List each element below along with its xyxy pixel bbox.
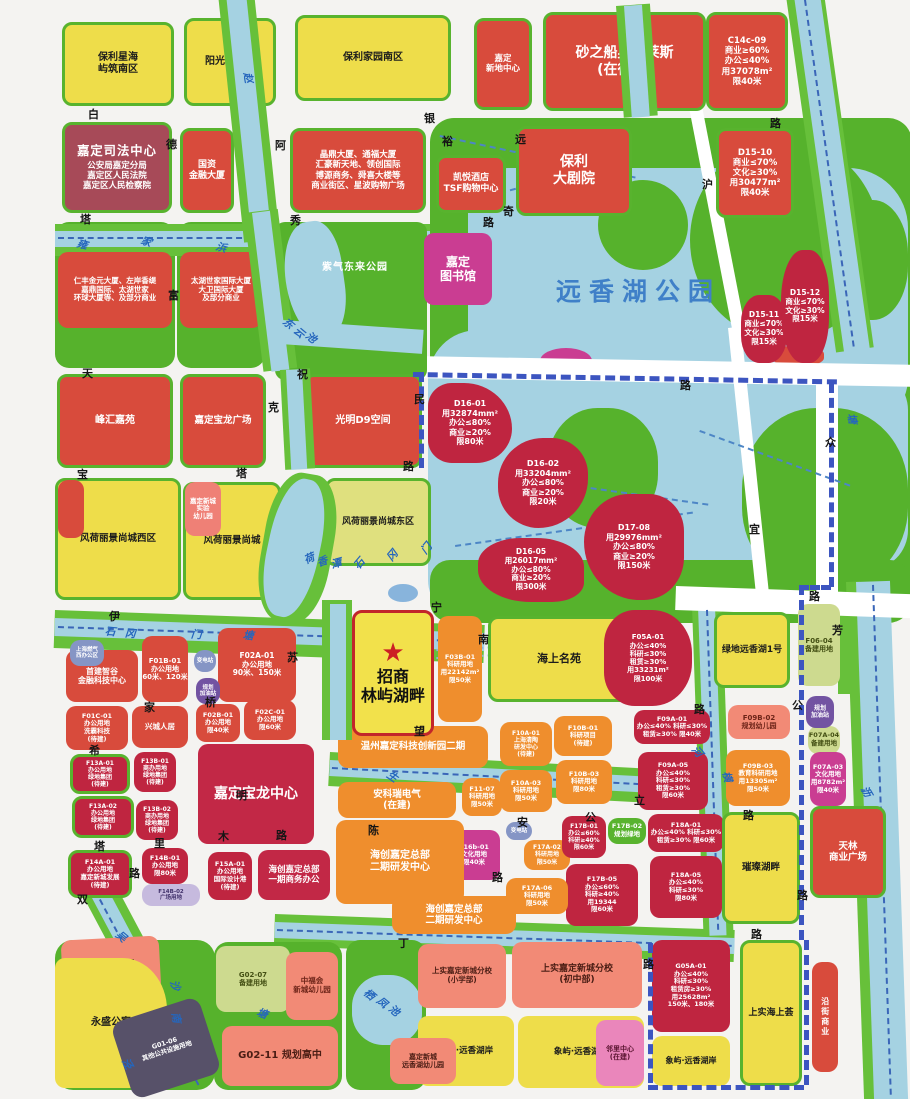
map-parcel: F02C-01办公用地限60米 bbox=[244, 700, 296, 740]
parcel-label: 限50米 bbox=[515, 795, 537, 803]
road-name-label: 众 bbox=[825, 434, 836, 450]
road bbox=[816, 372, 838, 617]
parcel-label: 二期研发中心 bbox=[370, 862, 430, 874]
map-parcel: 上实嘉定新城分校(小学部) bbox=[418, 944, 506, 1008]
map-parcel: F18A-01办公≤40% 科研≤30%租赁≥30% 限60米 bbox=[648, 814, 724, 852]
map-parcel: F01B-01办公用地60米、120米 bbox=[142, 636, 188, 702]
parcel-label: (待建) bbox=[91, 781, 109, 788]
parcel-label: 幼儿园 bbox=[193, 513, 213, 521]
parcel-label: 保利家园南区 bbox=[343, 52, 403, 64]
parcel-label: (小学部) bbox=[447, 976, 476, 985]
map-parcel: F17B-01办公≤60%科研≥40%限60米 bbox=[562, 816, 606, 858]
parcel-label: 环球大厦等、及部分商业 bbox=[74, 294, 157, 303]
parcel-label: D15-10 bbox=[738, 148, 772, 158]
river-name-label: 塘 bbox=[242, 628, 254, 644]
map-parcel: G05A-01办公≤40%科研≤30%租赁房≥30%用25628m²150米、1… bbox=[652, 940, 730, 1032]
road-name-label: 白 bbox=[88, 106, 99, 122]
planning-boundary-dashed-line bbox=[419, 372, 424, 468]
parcel-label: 嘉定宝龙中心 bbox=[214, 786, 298, 803]
parcel-label: 保利 bbox=[560, 154, 588, 171]
parcel-label: 商业≥60% bbox=[725, 46, 769, 56]
parcel-label: 商办用地 bbox=[145, 813, 169, 820]
map-parcel: F11-07科研用地限50米 bbox=[462, 778, 502, 816]
parcel-label: 汇豪新天地、领创国际 bbox=[315, 160, 400, 170]
parcel-label: 办公≤40% bbox=[630, 642, 667, 650]
parcel-label: 限50米 bbox=[526, 900, 548, 908]
map-parcel: D15-12商业≤70%文化≥30%限15米 bbox=[781, 250, 829, 363]
map-parcel: 嘉定宝龙广场 bbox=[180, 374, 266, 468]
map-parcel: F02A-01办公用地90米、150米 bbox=[218, 628, 296, 702]
map-parcel: 凯悦酒店TSF购物中心 bbox=[436, 155, 506, 213]
road-name-label: 路 bbox=[643, 956, 654, 972]
parcel-label: 图书馆 bbox=[440, 269, 476, 283]
map-parcel: 国资金融大厦 bbox=[180, 128, 234, 213]
planning-boundary-dashed-line bbox=[804, 940, 809, 1085]
parcel-label: 新地中心 bbox=[486, 64, 520, 74]
road-name-label: 路 bbox=[276, 827, 287, 843]
road-name-label: 南 bbox=[478, 631, 489, 647]
parcel-label: 备建用地 bbox=[811, 740, 837, 748]
parcel-label: 限50米 bbox=[537, 859, 557, 866]
map-parcel: 保利大剧院 bbox=[516, 126, 632, 216]
road-name-label: 天 bbox=[82, 365, 93, 381]
parcel-label: 限60米 bbox=[591, 906, 613, 914]
map-parcel: F14B-02广场用地 bbox=[142, 884, 200, 906]
zoning-map: 保利星海屿筑南区阳光城新界保利家园南区嘉定新地中心砂之船奥特莱斯(在待建)C14… bbox=[0, 0, 910, 1099]
road-name-label: 塔 bbox=[94, 838, 105, 854]
parcel-label: 90米、150米 bbox=[233, 669, 282, 678]
map-parcel: 仁丰金元大厦、左岸香缇嘉鼎国际、太湖世家环球大厦等、及部分商业 bbox=[58, 252, 172, 328]
road-name-label: 家 bbox=[144, 699, 155, 715]
parcel-label: 60米、120米 bbox=[142, 673, 187, 681]
map-parcel: 光明D9空间 bbox=[304, 374, 422, 468]
map-parcel: F13B-02商办用地绿地集团(待建) bbox=[136, 800, 178, 840]
map-parcel: F07A-03文化用地用8782m²限40米 bbox=[810, 752, 846, 806]
parcel-label: (在建) bbox=[610, 1053, 630, 1061]
map-parcel: C14c-09商业≥60%办公≤40%用37078m²限40米 bbox=[706, 12, 788, 111]
parcel-label: 限50米 bbox=[449, 677, 471, 685]
parcel-label: 风荷丽景尚城西区 bbox=[80, 533, 156, 544]
map-parcel: F14B-01办公用地限80米 bbox=[142, 848, 188, 884]
parcel-label: 规划 bbox=[814, 705, 826, 712]
parcel-label: 新城幼儿园 bbox=[293, 986, 331, 995]
parcel-label: 办公≤40% bbox=[725, 56, 769, 66]
parcel-label: F06-04 bbox=[805, 637, 832, 645]
river-name-label: 门 bbox=[190, 627, 202, 643]
parcel-label: 限50米 bbox=[747, 786, 769, 794]
road-name-label: 裕 bbox=[442, 133, 453, 149]
parcel-label: (待建) bbox=[148, 827, 166, 834]
road-name-label: 德 bbox=[166, 136, 177, 152]
map-parcel: 天林商业广场 bbox=[810, 806, 886, 898]
map-parcel: 上海燃气西办公区 bbox=[70, 640, 104, 666]
road-name-label: 丁 bbox=[398, 935, 409, 951]
map-parcel: 海创嘉定总部二期研发中心 bbox=[392, 896, 516, 934]
parcel-label: 广场用地 bbox=[160, 895, 182, 901]
map-parcel: 安科瑞电气(在建) bbox=[338, 782, 456, 818]
road-name-label: 秀 bbox=[290, 212, 301, 228]
road-name-label: 银 bbox=[424, 110, 435, 126]
parcel-label: 大剧院 bbox=[553, 171, 595, 188]
map-parcel: 上实嘉定新城分校(初中部) bbox=[512, 942, 642, 1008]
parcel-label: 租赁≥30% 限60米 bbox=[657, 837, 715, 845]
parcel-label: 用33204mm² bbox=[515, 469, 571, 478]
parcel-label: 林屿湖畔 bbox=[361, 687, 425, 706]
parcel-label: 限15米 bbox=[792, 315, 817, 324]
parcel-label: 温州嘉定科技创新园二期 bbox=[361, 741, 466, 752]
map-parcel: 海创嘉定总部一期商务办公 bbox=[258, 850, 330, 900]
parcel-label: (待建) bbox=[91, 882, 110, 890]
map-parcel: F10A-03科研用地限50米 bbox=[500, 770, 552, 812]
map-parcel: F13A-02办公用地绿地集团(待建) bbox=[72, 796, 134, 838]
parcel-label: 嘉定区人民法院 bbox=[87, 171, 147, 181]
map-parcel: 绿地远香湖1号 bbox=[714, 612, 790, 688]
map-parcel: 保利家园南区 bbox=[295, 15, 451, 101]
road-name-label: 塔 bbox=[236, 465, 247, 481]
road-name-label: 民 bbox=[414, 391, 425, 407]
road-name-label: 伊 bbox=[109, 608, 120, 624]
star-icon: ★ bbox=[381, 640, 404, 666]
parcel-label: 金融大厦 bbox=[189, 171, 225, 182]
parcel-label: 公安局嘉定分局 bbox=[87, 161, 147, 171]
parcel-label: 限100米 bbox=[634, 675, 663, 683]
parcel-label: G02-07 bbox=[239, 971, 267, 979]
parcel-label: 邻里中心 bbox=[606, 1045, 634, 1053]
parcel-label: 用30477m² bbox=[730, 178, 781, 188]
parcel-label: 商办用地 bbox=[143, 765, 167, 772]
map-parcel: D16-05用26017mm²办公≤80%商业≥20%限300米 bbox=[478, 538, 584, 602]
map-parcel: 沿街商业 bbox=[812, 962, 838, 1072]
parcel-label: F05A-01 bbox=[632, 633, 665, 641]
parcel-label: 限40米 bbox=[733, 77, 762, 87]
parcel-label: 象屿·远香湖岸 bbox=[665, 1056, 716, 1065]
map-parcel: 中福会新城幼儿园 bbox=[286, 952, 338, 1020]
map-parcel: G02-11 规划高中 bbox=[222, 1026, 338, 1086]
map-parcel: 规划加油站 bbox=[806, 696, 834, 728]
parcel-label: 变电站 bbox=[197, 658, 214, 664]
parcel-label: 商业街区、星波购物广场 bbox=[311, 181, 405, 191]
road-name-label: 苏 bbox=[287, 649, 298, 665]
parcel-label: 风荷丽景尚城 bbox=[203, 535, 260, 546]
parcel-label: 商业≥20% bbox=[449, 428, 491, 437]
parcel-label: 凯悦酒店 bbox=[453, 173, 489, 184]
road-name-label: 阿 bbox=[275, 137, 286, 153]
road-name-label: 路 bbox=[129, 865, 140, 881]
parcel-label: F09B-02 bbox=[743, 714, 776, 722]
parcel-label: C14c-09 bbox=[728, 36, 766, 46]
parcel-label: 限60米 bbox=[259, 724, 281, 732]
parcel-label: D17-08 bbox=[618, 523, 650, 532]
parcel-label: (待建) bbox=[221, 884, 240, 892]
road-name-label: 富 bbox=[168, 287, 179, 303]
parcel-label: D16-01 bbox=[454, 399, 486, 408]
map-parcel: F07A-04备建用地 bbox=[808, 726, 840, 754]
parcel-label: 上实海上荟 bbox=[748, 1008, 793, 1019]
map-parcel: 嘉定图书馆 bbox=[424, 233, 492, 305]
planning-boundary-dashed-line bbox=[829, 383, 834, 587]
parcel-label: 用33231m² bbox=[627, 666, 669, 674]
parcel-label: F13B-02 bbox=[143, 806, 171, 813]
parcel-label: 璀璨湖畔 bbox=[742, 862, 780, 873]
parcel-label: (待建) bbox=[146, 779, 164, 786]
parcel-label: 嘉定 bbox=[494, 54, 511, 64]
map-parcel bbox=[58, 480, 84, 538]
parcel-label: 商业≥20% bbox=[522, 488, 564, 497]
road-name-label: 宜 bbox=[749, 521, 760, 537]
road-name-label: 路 bbox=[751, 926, 762, 942]
parcel-label: F01B-01 bbox=[149, 657, 182, 665]
parcel-label: 办公≤80% bbox=[449, 418, 491, 427]
parcel-label: 兴城人居 bbox=[145, 723, 175, 732]
parcel-label: 限80米 bbox=[573, 786, 595, 794]
parcel-label: 限150米 bbox=[618, 561, 651, 570]
map-parcel: F10A-01上海清陶研发中心(待建) bbox=[500, 722, 552, 766]
map-parcel: 象屿·远香湖岸 bbox=[652, 1036, 730, 1086]
map-parcel: 璀璨湖畔 bbox=[722, 812, 800, 924]
map-parcel: F18A-05办公≤40%科研≤30%限80米 bbox=[650, 856, 722, 918]
area-title: 远香湖公园 bbox=[556, 272, 721, 308]
road-name-label: 克 bbox=[268, 399, 279, 415]
parcel-label: 光明D9空间 bbox=[335, 415, 390, 427]
road-name-label: 祝 bbox=[297, 366, 308, 382]
road-name-label: 路 bbox=[797, 887, 808, 903]
map-parcel: 嘉定新城实验幼儿园 bbox=[185, 482, 221, 536]
parcel-label: 办公≤80% bbox=[522, 478, 564, 487]
area-title: 紫气东来公园 bbox=[322, 258, 388, 273]
parcel-label: 晶鼎大厦、通福大厦 bbox=[320, 150, 397, 160]
river-name-label: 南 bbox=[168, 1011, 185, 1024]
road-name-label: 公 bbox=[585, 809, 596, 825]
parcel-label: 办公用地 bbox=[88, 767, 112, 774]
parcel-label: (待建) bbox=[94, 824, 112, 831]
parcel-label: 办公用地 bbox=[151, 665, 179, 673]
parcel-label: 办公用地 bbox=[91, 810, 115, 817]
road-name-label: 桥 bbox=[205, 694, 216, 710]
parcel-label: 限40米 bbox=[463, 859, 485, 867]
parcel-label: (待建) bbox=[574, 740, 593, 748]
road-name-label: 希 bbox=[89, 742, 100, 758]
parcel-label: F10A-01 bbox=[512, 730, 540, 737]
parcel-label: 风荷丽景尚城东区 bbox=[342, 517, 414, 528]
parcel-label: (在建) bbox=[383, 800, 411, 811]
parcel-label: 限40米 bbox=[741, 188, 770, 198]
map-parcel: 嘉定新地中心 bbox=[474, 18, 532, 110]
parcel-label: 用29976mm² bbox=[606, 533, 662, 542]
road-name-label: 安 bbox=[517, 814, 528, 830]
map-parcel: F02B-01办公用地限40米 bbox=[196, 704, 240, 742]
map-parcel: 兴城人居 bbox=[132, 706, 188, 748]
parcel-label: 国资 bbox=[198, 160, 216, 171]
parcel-label: 嘉定区人民检察院 bbox=[83, 181, 151, 191]
parcel-label: 博源商务、舜喜大楼等 bbox=[315, 171, 400, 181]
parcel-label: 商业≥20% bbox=[613, 552, 655, 561]
map-parcel: F09A-05办公≤40%科研≤30%租赁≥30%限60米 bbox=[638, 752, 708, 810]
road-name-label: 路 bbox=[770, 115, 781, 131]
parcel-label: 租赁≥30% bbox=[630, 658, 667, 666]
parcel-label: 用32874mm² bbox=[442, 409, 498, 418]
map-parcel: F17B-05办公≤60%科研≥40%用19344限60米 bbox=[566, 864, 638, 926]
planning-boundary-dashed-line bbox=[648, 1085, 804, 1090]
parcel-label: 限80米 bbox=[675, 895, 697, 903]
map-parcel: F09B-02规划幼儿园 bbox=[728, 705, 790, 739]
parcel-label: TSF购物中心 bbox=[444, 184, 499, 195]
road-name-label: 公 bbox=[792, 697, 803, 713]
river-name-label: 冈 bbox=[124, 626, 136, 642]
parcel-label: 规划幼儿园 bbox=[742, 722, 777, 730]
parcel-label: 一期商务办公 bbox=[268, 875, 319, 885]
parcel-label: 规划绿地 bbox=[614, 831, 640, 839]
road-name-label: 芳 bbox=[832, 622, 843, 638]
map-parcel: 保利星海屿筑南区 bbox=[62, 22, 174, 106]
road-name-label: 木 bbox=[218, 828, 229, 844]
map-parcel: F10B-01科研项目(待建) bbox=[554, 716, 612, 756]
parcel-label: F13B-01 bbox=[141, 758, 169, 765]
map-parcel: 变电站 bbox=[194, 650, 216, 672]
river-name-label: 塘 bbox=[844, 412, 861, 425]
parcel-label: 150米、180米 bbox=[668, 1001, 715, 1009]
parcel-label: (待建) bbox=[517, 751, 535, 758]
parcel-label: 限40米 bbox=[207, 727, 229, 735]
road-name-label: 立 bbox=[634, 792, 645, 808]
parcel-label: 海上名苑 bbox=[537, 653, 581, 666]
map-parcel: 峰汇嘉苑 bbox=[57, 374, 173, 468]
road-name-label: 双 bbox=[77, 891, 88, 907]
river-name-label: 石 bbox=[104, 624, 116, 640]
parcel-label: 保利星海 bbox=[98, 52, 138, 64]
parcel-label: 限15米 bbox=[751, 338, 776, 347]
map-parcel: F13A-01办公用地绿地集团(待建) bbox=[70, 754, 130, 794]
parcel-label: 海创嘉定总部 bbox=[370, 850, 430, 862]
parcel-label: 绿地远香湖1号 bbox=[722, 645, 782, 656]
road-name-label: 沪 bbox=[702, 176, 713, 192]
parcel-label: D16-02 bbox=[527, 459, 559, 468]
road-name-label: 路 bbox=[694, 701, 705, 717]
road-name-label: 望 bbox=[414, 723, 425, 739]
road-name-label: 路 bbox=[743, 807, 754, 823]
road-name-label: 塔 bbox=[80, 211, 91, 227]
parcel-label: 加油站 bbox=[811, 712, 829, 719]
map-parcel: 嘉定新城远香湖幼儿园 bbox=[390, 1038, 456, 1084]
parcel-label: 嘉定新城 bbox=[409, 1053, 437, 1061]
road-name-label: 明 bbox=[236, 787, 247, 803]
parcel-label: 备建用地 bbox=[239, 979, 267, 987]
parcel-label: F13A-01 bbox=[86, 760, 114, 767]
parcel-label: 科研≤30% bbox=[630, 650, 667, 658]
parcel-label: 嘉定司法中心 bbox=[77, 144, 157, 159]
road-name-label: 路 bbox=[680, 377, 691, 393]
map-parcel: F15A-01办公用地国际设计港(待建) bbox=[208, 852, 252, 900]
road-name-label: 宁 bbox=[431, 599, 442, 615]
map-parcel: 海创嘉定总部二期研发中心 bbox=[336, 820, 464, 904]
parcel-label: 用37078m² bbox=[722, 67, 773, 77]
parcel-label: 科研用地 bbox=[535, 851, 559, 858]
parcel-label: 文化≥30% bbox=[733, 168, 777, 178]
parcel-label: 限20米 bbox=[529, 497, 556, 506]
parcel-label: 金融科技中心 bbox=[78, 676, 126, 685]
map-parcel: F03B-01科研用地用22142m²限50米 bbox=[438, 616, 482, 722]
parcel-label: 租赁≥30% 限40米 bbox=[643, 731, 701, 739]
road-name-label: 路 bbox=[492, 869, 503, 885]
road-name-label: 陈 bbox=[368, 822, 379, 838]
parcel-label: G02-11 规划高中 bbox=[238, 1050, 322, 1062]
map-parcel: 风荷丽景尚城东区 bbox=[325, 478, 431, 566]
parcel-label: 限40米 bbox=[817, 787, 839, 795]
map-parcel: ★招商林屿湖畔 bbox=[352, 610, 434, 736]
parcel-label: 峰汇嘉苑 bbox=[95, 415, 135, 427]
parcel-label: 限80米 bbox=[456, 437, 483, 446]
map-parcel: F17B-02规划绿地 bbox=[608, 818, 646, 844]
parcel-label: 屿筑南区 bbox=[98, 64, 138, 76]
map-parcel: D15-10商业≤70%文化≥30%用30477m²限40米 bbox=[716, 128, 794, 218]
parcel-label: 沿街商业 bbox=[820, 997, 829, 1037]
parcel-label: 远香湖幼儿园 bbox=[402, 1061, 444, 1069]
parcel-label: 首建智谷 bbox=[86, 667, 118, 676]
road-name-label: 路 bbox=[403, 458, 414, 474]
parcel-label: 商业广场 bbox=[829, 852, 867, 863]
parcel-label: 海创嘉定总部 bbox=[425, 904, 482, 915]
map-parcel: F06-04备建用地 bbox=[798, 604, 840, 686]
map-parcel: 上实海上荟 bbox=[740, 940, 802, 1086]
road-name-label: 宝 bbox=[77, 466, 88, 482]
parcel-label: 限60米 bbox=[574, 844, 594, 851]
parcel-label: 备建用地 bbox=[805, 645, 833, 653]
parcel-label: F13A-02 bbox=[89, 803, 117, 810]
parcel-label: 嘉定宝龙广场 bbox=[194, 415, 251, 426]
parcel-label: 商业≤70% bbox=[733, 158, 777, 168]
parcel-label: 上海清陶 bbox=[514, 737, 538, 744]
parcel-label: 办公≤60% bbox=[568, 830, 599, 837]
parcel-label: 限300米 bbox=[516, 583, 547, 592]
parcel-label: 海创嘉定总部 bbox=[268, 865, 319, 875]
parcel-label: 天林 bbox=[838, 841, 857, 852]
map-parcel: F13B-01商办用地绿地集团(待建) bbox=[134, 752, 176, 792]
map-parcel: 邻里中心(在建) bbox=[596, 1020, 644, 1086]
road-name-label: 路 bbox=[483, 214, 494, 230]
map-parcel: F10B-03科研用地限80米 bbox=[556, 760, 612, 804]
parcel-label: 限60米 bbox=[662, 792, 684, 800]
parcel-label: 限50米 bbox=[471, 801, 493, 809]
parcel-label: 办公≤80% bbox=[613, 542, 655, 551]
parcel-label: 安科瑞电气 bbox=[373, 789, 421, 800]
parcel-label: 限80米 bbox=[154, 870, 176, 878]
river-name-label: 赵 bbox=[240, 71, 257, 84]
parcel-label: 上实嘉定新城分校 bbox=[541, 964, 613, 975]
map-parcel: G02-07备建用地 bbox=[216, 946, 290, 1012]
parcel-label: 及部分商业 bbox=[202, 294, 240, 303]
parcel-label: 西办公区 bbox=[76, 653, 98, 659]
map-parcel: 嘉定宝龙中心 bbox=[198, 744, 314, 844]
parcel-label: (初中部) bbox=[559, 975, 594, 986]
parcel-label: 嘉定 bbox=[446, 255, 470, 269]
waterway bbox=[388, 584, 418, 602]
road-name-label: 路 bbox=[809, 588, 820, 604]
parcel-label: 招商 bbox=[377, 668, 409, 687]
road-name-label: 奇 bbox=[503, 203, 514, 219]
map-parcel: 嘉定司法中心公安局嘉定分局嘉定区人民法院嘉定区人民检察院 bbox=[62, 122, 172, 213]
waterway bbox=[330, 604, 346, 740]
road-name-label: 远 bbox=[515, 131, 526, 147]
road-name-label: 里 bbox=[154, 835, 165, 851]
parcel-label: 二期研发中心 bbox=[425, 915, 482, 926]
map-parcel: F05A-01办公≤40%科研≤30%租赁≥30%用33231m²限100米 bbox=[604, 610, 692, 706]
map-parcel: 晶鼎大厦、通福大厦汇豪新天地、领创国际博源商务、舜喜大楼等商业街区、星波购物广场 bbox=[290, 128, 426, 213]
